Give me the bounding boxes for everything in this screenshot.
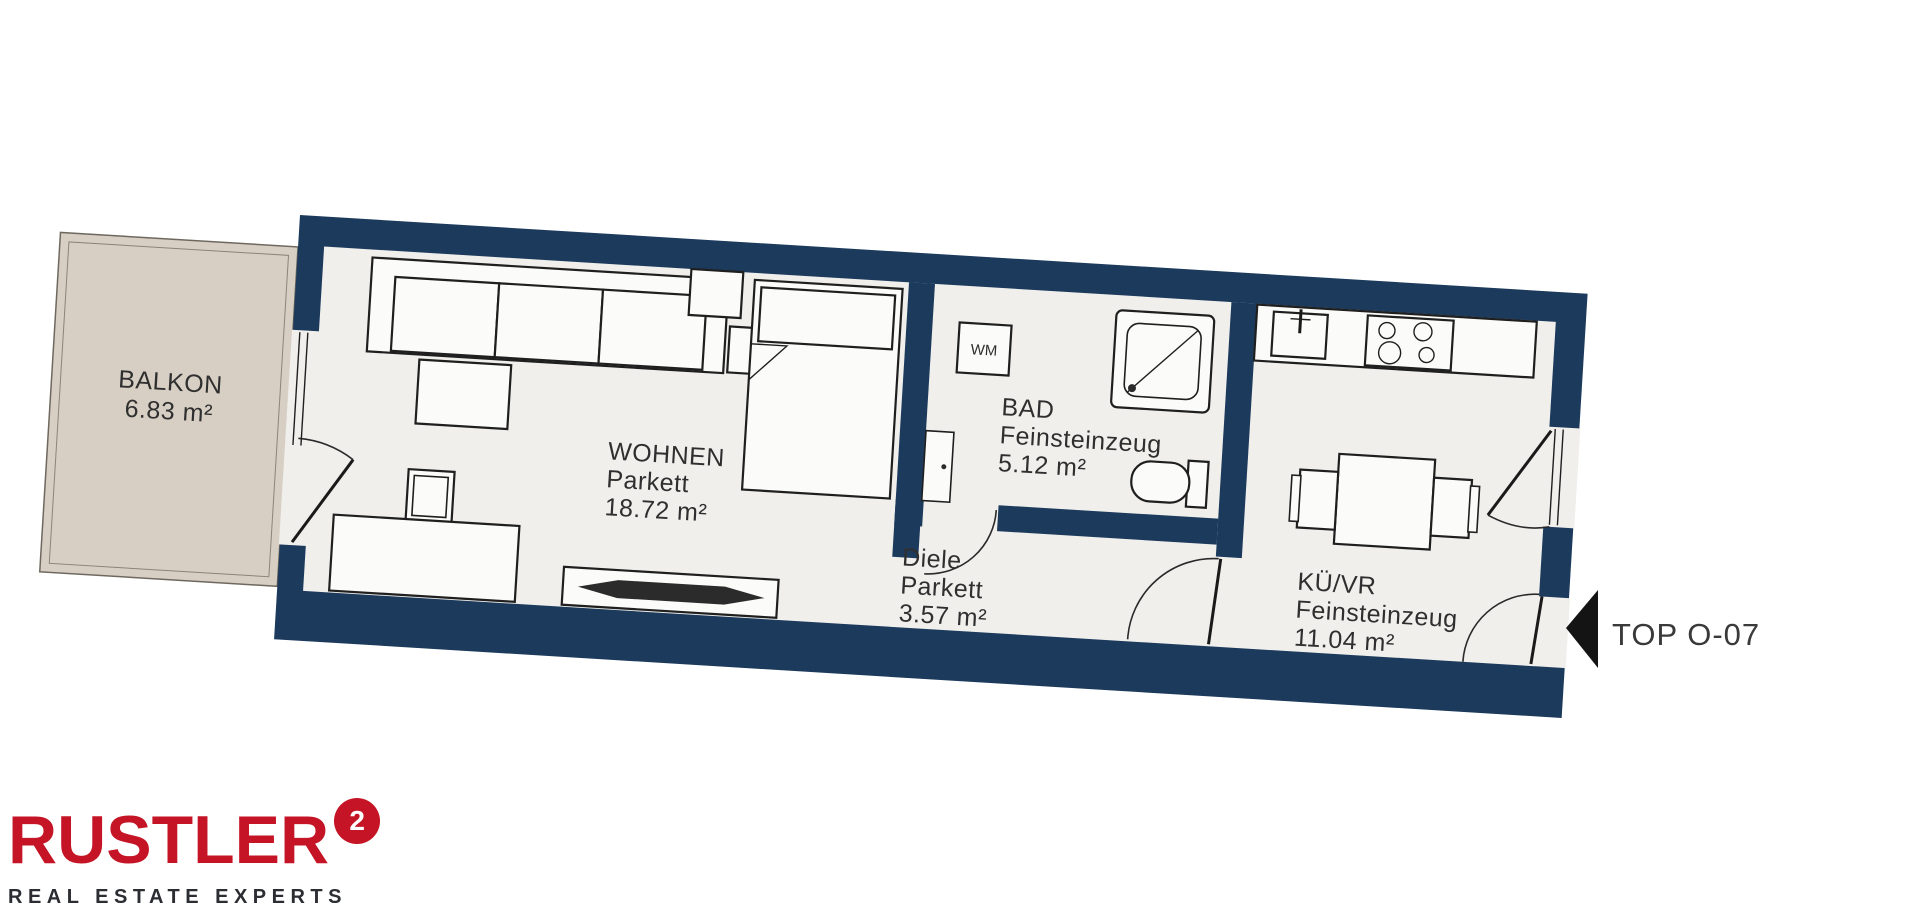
sofa-cushion-2 — [495, 283, 603, 363]
entrance-arrow-icon — [1566, 590, 1598, 668]
bathroom-door-leaf — [922, 431, 954, 503]
sofa-cushion-1 — [391, 277, 499, 357]
logo-brand-text: RUSTLER — [8, 806, 329, 874]
cooktop — [1365, 315, 1454, 370]
toilet-bowl — [1130, 460, 1190, 503]
dining-chair-left-back — [1289, 475, 1301, 521]
logo-tagline: REAL ESTATE EXPERTS — [8, 886, 380, 909]
coffee-table — [415, 360, 511, 429]
dining-chair-left — [1297, 470, 1338, 530]
floorplan-drawing: WM BALKON 6.83 m² — [0, 0, 1920, 923]
desk-chair-seat — [412, 475, 448, 517]
desk — [329, 515, 519, 602]
balkon-area: 6.83 m² — [124, 395, 214, 428]
plan-rotated-group: WM BALKON 6.83 m² — [36, 200, 1588, 718]
dining-chair-right — [1431, 478, 1472, 538]
logo-row: RUSTLER 2 — [8, 806, 380, 874]
floorplan-stage: WM BALKON 6.83 m² — [0, 0, 1920, 923]
rustler-logo: RUSTLER 2 REAL ESTATE EXPERTS — [8, 806, 380, 909]
wall-cabinet — [689, 269, 744, 318]
bed-pillow — [758, 287, 895, 349]
bathroom-bottom-wall-left — [894, 499, 924, 527]
unit-label: TOP O-07 — [1612, 617, 1760, 652]
bad-name: BAD — [1001, 393, 1056, 424]
diele-name: Diele — [901, 543, 962, 575]
room-label-balkon: BALKON 6.83 m² — [116, 365, 224, 428]
sink-tap-icon — [1300, 309, 1301, 333]
diele-area: 3.57 m² — [898, 599, 988, 632]
washing-machine-label: WM — [970, 341, 998, 360]
right-window-opening — [1542, 427, 1580, 529]
logo-superscript-badge: 2 — [334, 798, 380, 844]
logo-superscript-text: 2 — [349, 807, 365, 835]
dining-chair-right-back — [1468, 486, 1480, 532]
dining-table — [1334, 454, 1435, 550]
bad-area: 5.12 m² — [997, 449, 1087, 482]
